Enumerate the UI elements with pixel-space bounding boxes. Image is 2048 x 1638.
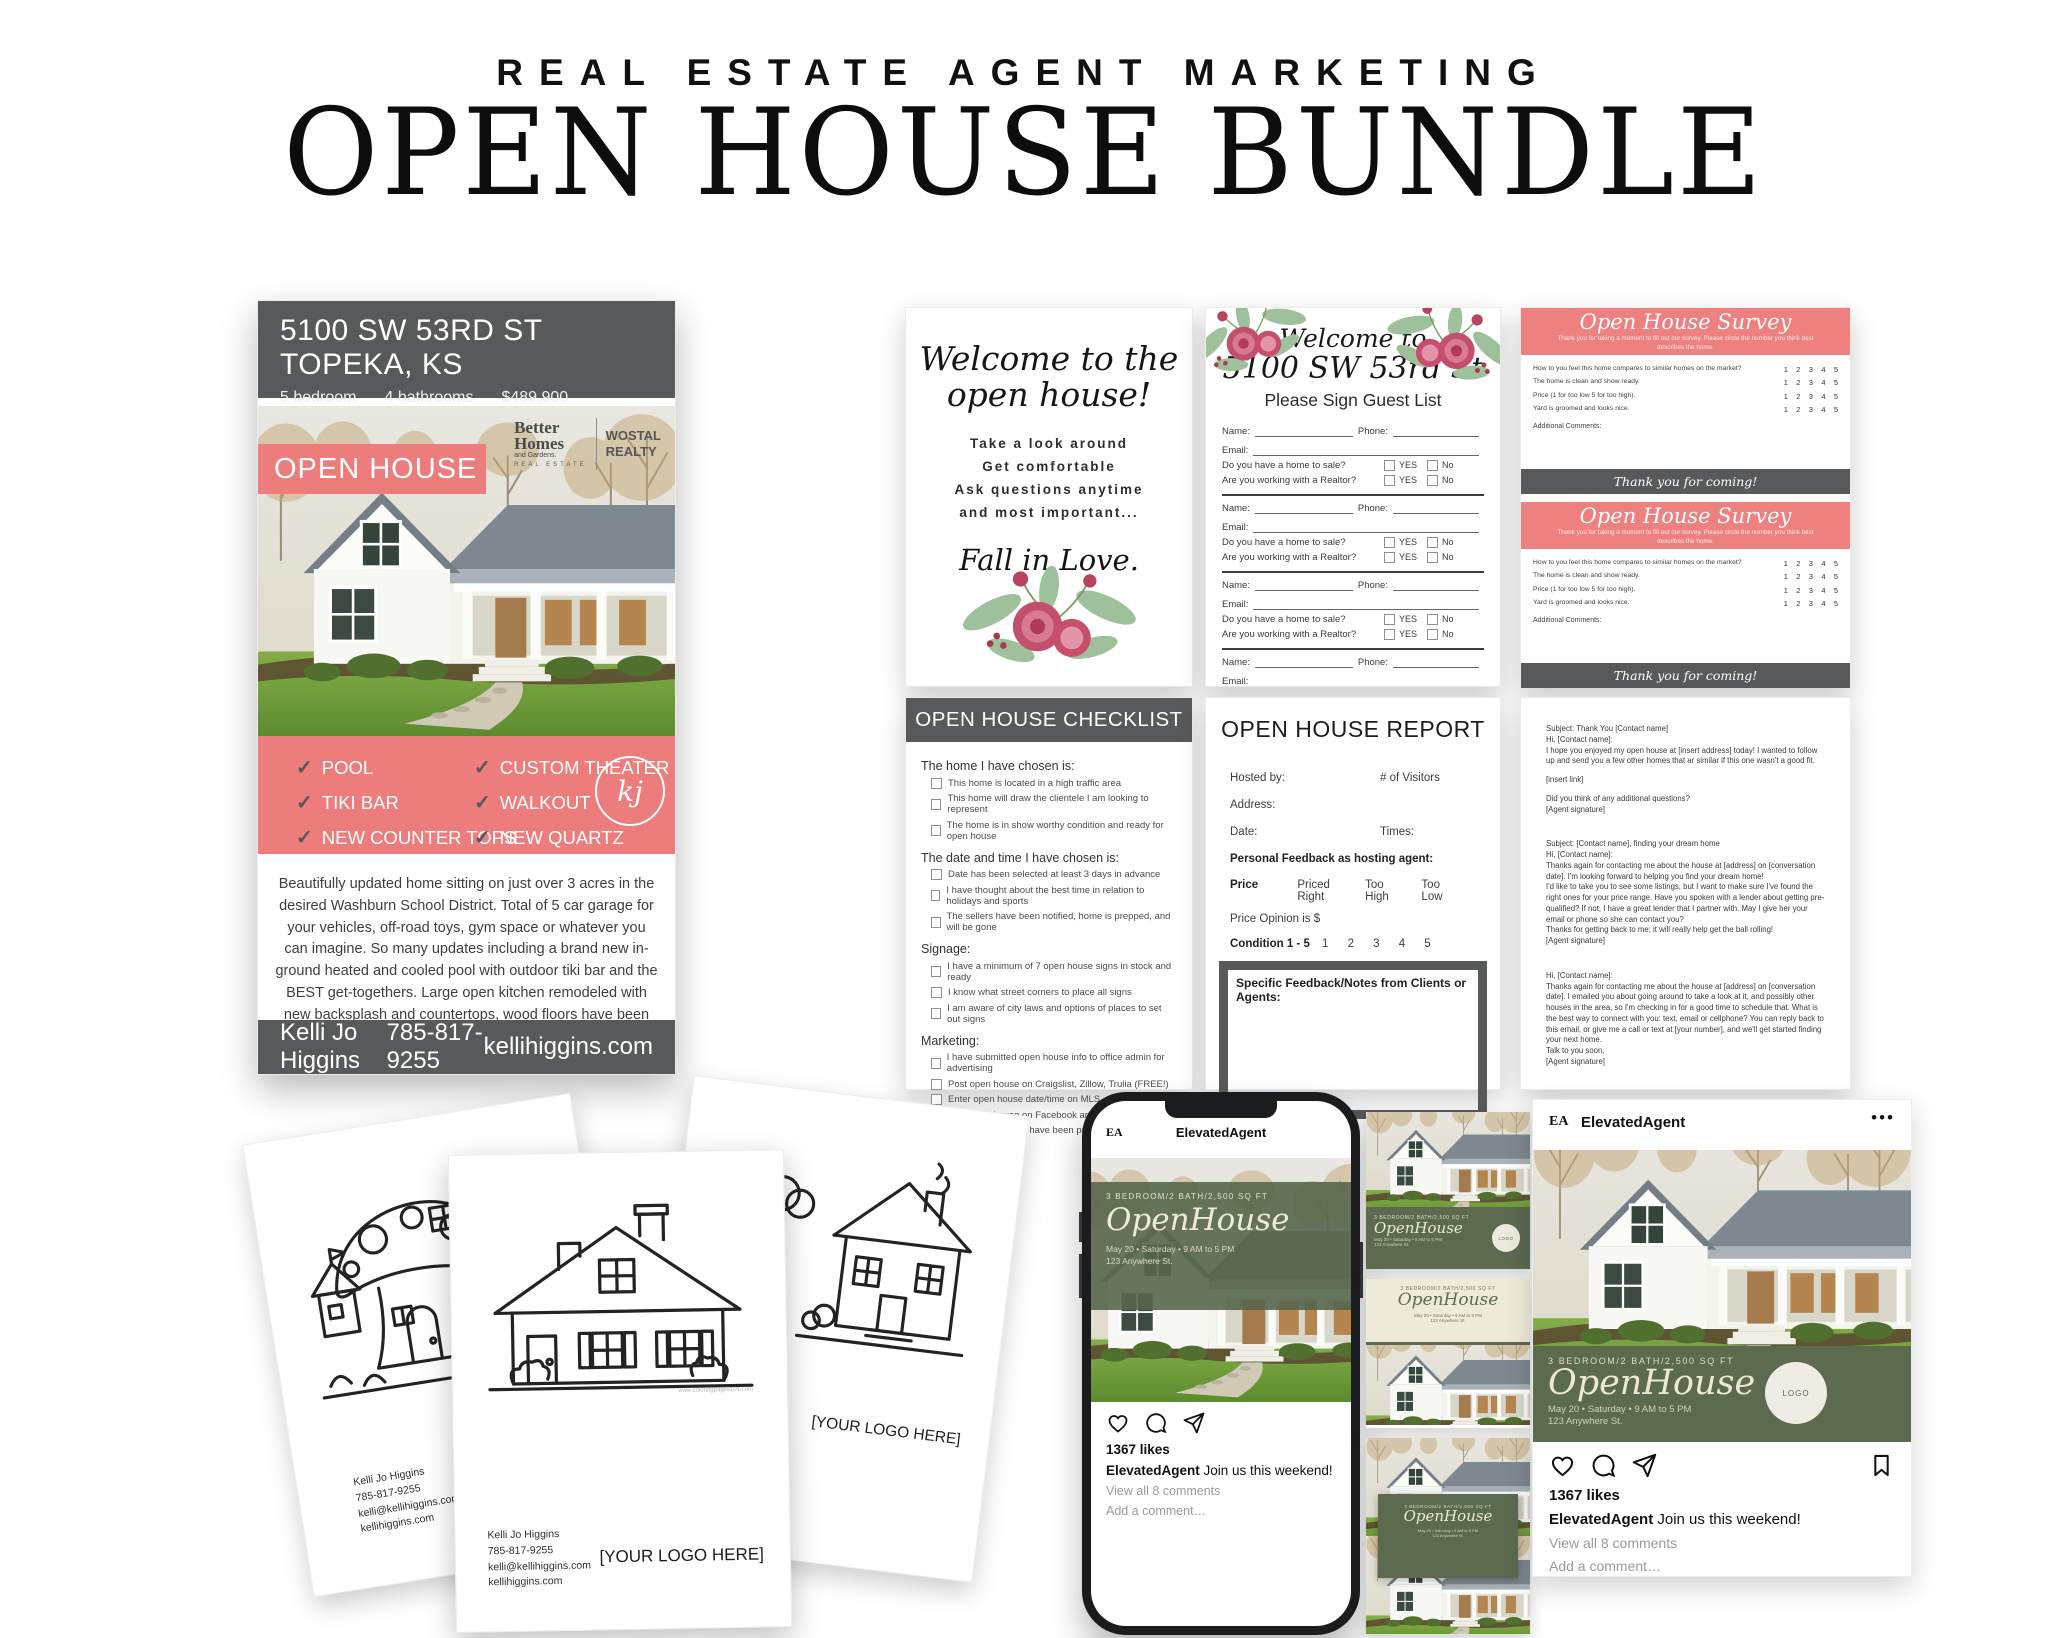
- flyer-specs: 5 bedroom4 bathrooms$489,900: [280, 389, 653, 407]
- agent-name: Kelli Jo Higgins: [280, 1019, 387, 1075]
- overlay-title: OpenHouse: [1106, 1202, 1351, 1238]
- check-icon: ✓: [296, 757, 313, 779]
- account-logo: EA: [1106, 1125, 1123, 1140]
- rating-scale: 1 2 3 4 5: [1784, 559, 1838, 568]
- view-comments-link[interactable]: View all 8 comments: [1533, 1528, 1911, 1551]
- checkbox[interactable]: [1427, 614, 1438, 625]
- survey-comments-label: Additional Comments:: [1533, 617, 1838, 624]
- checkbox[interactable]: [931, 1058, 941, 1069]
- guest-entry: Name:Phone: Email: Do you have a home to…: [1222, 571, 1484, 648]
- guest-entries: Name:Phone: Email: Do you have a home to…: [1222, 419, 1484, 688]
- checklist-item: I have a minimum of 7 open house signs i…: [931, 961, 1177, 983]
- checkbox[interactable]: [1427, 460, 1438, 471]
- checklist-item: Post open house on Craigslist, Zillow, T…: [931, 1079, 1177, 1090]
- add-comment-field[interactable]: Add a comment…: [1091, 1498, 1351, 1518]
- email-line: I'd like to take you to see some listing…: [1546, 882, 1825, 925]
- overlay-address: 123 Anywhere St.: [1106, 1256, 1351, 1266]
- feature-item: ✓TIKI BAR: [296, 786, 474, 821]
- share-icon[interactable]: [1631, 1452, 1658, 1479]
- survey-block: Open House Survey Thank you for taking a…: [1521, 308, 1850, 494]
- cottage-drawing: [478, 1189, 762, 1398]
- checkbox[interactable]: [931, 778, 942, 789]
- brokerage-wostal: WOSTAL: [606, 428, 661, 444]
- email-line: [Agent signature]: [1546, 1057, 1825, 1068]
- email-templates-page: Subject: Thank You [Contact name] Hi, [C…: [1520, 697, 1851, 1090]
- phone-notch: [1165, 1101, 1277, 1118]
- survey-comments-label: Additional Comments:: [1533, 423, 1838, 430]
- coloring-page-cottage: www.coloringpages101.com Kelli Jo Higgin…: [448, 1149, 792, 1633]
- email-line: Talk to you soon,: [1546, 1046, 1825, 1057]
- check-icon: ✓: [296, 792, 313, 814]
- survey-intro: Thank you for taking a moment to fill ou…: [1544, 529, 1827, 546]
- checkbox[interactable]: [1384, 537, 1395, 548]
- feature-item: ✓NEW COUNTER TOPS: [296, 821, 474, 856]
- band-date: May 20 • Saturday • 9 AM to 5 PM: [1548, 1404, 1911, 1415]
- survey-intro: Thank you for taking a moment to fill ou…: [1544, 335, 1827, 352]
- account-name: ElevatedAgent: [1581, 1114, 1685, 1131]
- share-icon[interactable]: [1182, 1411, 1206, 1435]
- rating-scale: 1 2 3 4 5: [1784, 586, 1838, 595]
- post-caption: ElevatedAgent Join us this weekend!: [1533, 1504, 1911, 1528]
- checklist-item: I am aware of city laws and options of p…: [931, 1003, 1177, 1025]
- checkbox[interactable]: [931, 1094, 942, 1105]
- brokerage-realty: REALTY: [606, 444, 661, 460]
- social-post-thumb-3: 3 BEDROOM/2 BATH/2,500 SQ FT OpenHouse M…: [1366, 1438, 1530, 1634]
- add-comment-field[interactable]: Add a comment…: [1533, 1551, 1911, 1574]
- condition-scale: 1 2 3 4 5: [1322, 938, 1431, 950]
- checkbox[interactable]: [931, 825, 941, 836]
- coloring-watermark: www.coloringpages101.com: [678, 1387, 753, 1394]
- welcome-sign: Welcome to the open house! Take a look a…: [905, 307, 1193, 687]
- report-title: OPEN HOUSE REPORT: [1206, 716, 1500, 743]
- checkbox[interactable]: [931, 1079, 942, 1090]
- thumb-photo: [1366, 1112, 1530, 1207]
- checkbox[interactable]: [1384, 475, 1395, 486]
- bookmark-icon[interactable]: [1868, 1452, 1895, 1479]
- guest-entry: Name:Phone: Email: Do you have a home to…: [1222, 419, 1484, 494]
- post-image: [1533, 1150, 1911, 1346]
- survey-block: Open House Survey Thank you for taking a…: [1521, 502, 1850, 688]
- coloring-contact: Kelli Jo Higgins785-817-9255kelli@kellih…: [352, 1460, 463, 1538]
- open-house-overlay: 3 BEDROOM/2 BATH/2,500 SQ FT OpenHouse M…: [1091, 1182, 1351, 1310]
- email-line: Thanks again for contacting me about the…: [1546, 982, 1825, 1047]
- email-line: Did you think of any additional question…: [1546, 794, 1825, 805]
- account-logo: EA: [1549, 1114, 1568, 1130]
- email-line: [Agent signature]: [1546, 805, 1825, 816]
- rating-scale: 1 2 3 4 5: [1784, 365, 1838, 374]
- flyer-beds: 5 bedroom: [280, 389, 357, 406]
- guest-entry: Name:Phone: Email: Do you have a home to…: [1222, 494, 1484, 571]
- survey-footer: Thank you for coming!: [1521, 663, 1850, 688]
- overlay-specs: 3 BEDROOM/2 BATH/2,500 SQ FT: [1106, 1192, 1351, 1201]
- rating-scale: 1 2 3 4 5: [1784, 572, 1838, 581]
- instagram-post-card: EA ElevatedAgent •••: [1532, 1099, 1912, 1577]
- email-line: Subject: Thank You [Contact name]: [1546, 724, 1825, 735]
- brokerage-homes: Homes: [514, 436, 587, 452]
- open-house-report: OPEN HOUSE REPORT Hosted by:# of Visitor…: [1205, 697, 1501, 1090]
- more-options-icon[interactable]: •••: [1871, 1108, 1895, 1128]
- checklist-section-heading: Marketing:: [921, 1034, 1177, 1048]
- open-house-flyer: 5100 SW 53RD ST TOPEKA, KS 5 bedroom4 ba…: [257, 300, 676, 1075]
- open-house-checklist: OPEN HOUSE CHECKLIST The home I have cho…: [905, 697, 1193, 1090]
- open-house-banner: OPEN HOUSE: [258, 444, 486, 494]
- comment-icon[interactable]: [1144, 1411, 1168, 1435]
- checkbox[interactable]: [931, 987, 942, 998]
- email-line: Thanks for getting back to me; it will r…: [1546, 925, 1825, 936]
- thumb-photo: [1366, 1345, 1530, 1425]
- checklist-item: This home will draw the clientele I am l…: [931, 793, 1177, 815]
- brokerage-realestate: REAL ESTATE: [514, 462, 587, 468]
- check-icon: ✓: [296, 827, 313, 849]
- email-line: Hi, [Contact name]:: [1546, 971, 1825, 982]
- survey-footer: Thank you for coming!: [1521, 469, 1850, 494]
- survey-title: Open House Survey: [1521, 311, 1850, 334]
- checkbox[interactable]: [931, 917, 941, 928]
- checkbox[interactable]: [931, 799, 941, 810]
- email-line: Thanks again for contacting me about the…: [1546, 861, 1825, 883]
- logo-placeholder: [YOUR LOGO HERE]: [599, 1545, 764, 1568]
- comment-icon[interactable]: [1590, 1452, 1617, 1479]
- post-actions: [1533, 1442, 1911, 1479]
- logo-circle: LOGO: [1492, 1224, 1520, 1252]
- checklist-item: I have submitted open house info to offi…: [931, 1052, 1177, 1074]
- checkbox[interactable]: [1384, 614, 1395, 625]
- guest-subheading: Please Sign Guest List: [1206, 390, 1500, 411]
- welcome-title-line1: Welcome to the: [906, 342, 1192, 377]
- flyer-features-band: ✓POOL ✓TIKI BAR ✓NEW COUNTER TOPS ✓CUSTO…: [258, 736, 675, 854]
- feature-item: ✓NEW QUARTZ: [474, 821, 652, 856]
- likes-count: 1367 likes: [1091, 1435, 1351, 1457]
- open-house-survey-page: Open House Survey Thank you for taking a…: [1520, 307, 1851, 687]
- account-name: ElevatedAgent: [1091, 1125, 1351, 1140]
- coloring-contact: Kelli Jo Higgins785-817-9255kelli@kellih…: [487, 1527, 591, 1592]
- phone-volume-button: [1079, 1212, 1082, 1242]
- brokerage-gardens: and Gardens.: [514, 452, 587, 460]
- phone-volume-button: [1079, 1254, 1082, 1298]
- rating-scale: 1 2 3 4 5: [1784, 405, 1838, 414]
- guest-entry: Name:Phone: Email: Do you have a home to…: [1222, 648, 1484, 688]
- checklist-item: Date has been selected at least 3 days i…: [931, 869, 1177, 880]
- checklist-title: OPEN HOUSE CHECKLIST: [906, 698, 1192, 742]
- phone-power-button: [1360, 1242, 1363, 1298]
- checklist-item: This home is located in a high traffic a…: [931, 778, 1177, 789]
- post-actions: [1091, 1402, 1351, 1435]
- email-line: Subject: [Contact name], finding your dr…: [1546, 839, 1825, 850]
- checkbox[interactable]: [931, 890, 940, 901]
- phone-screen: EA ElevatedAgent 3 BEDROOM/2 BATH/2,500 …: [1091, 1101, 1351, 1626]
- email-line: [Agent signature]: [1546, 936, 1825, 947]
- checkbox[interactable]: [1427, 552, 1438, 563]
- flyer-address: 5100 SW 53RD ST TOPEKA, KS: [280, 314, 653, 382]
- agent-website: kellihiggins.com: [484, 1033, 653, 1061]
- checkbox[interactable]: [1427, 537, 1438, 548]
- flyer-price: $489,900: [501, 389, 568, 406]
- band-title: OpenHouse: [1548, 1366, 1911, 1401]
- overlay-date: May 20 • Saturday • 9 AM to 5 PM: [1106, 1244, 1351, 1254]
- likes-count: 1367 likes: [1533, 1479, 1911, 1504]
- email-line: Hi, [Contact name]:: [1546, 735, 1825, 746]
- instagram-header: EA ElevatedAgent •••: [1533, 1100, 1911, 1150]
- kj-logo-badge: kj: [595, 756, 665, 826]
- like-icon[interactable]: [1549, 1452, 1576, 1479]
- survey-title: Open House Survey: [1521, 505, 1850, 528]
- open-house-banner-band: 3 BEDROOM/2 BATH/2,500 SQ FT OpenHouse M…: [1533, 1346, 1911, 1442]
- check-icon: ✓: [474, 827, 491, 849]
- checkbox[interactable]: [1384, 629, 1395, 640]
- rating-scale: 1 2 3 4 5: [1784, 392, 1838, 401]
- view-comments-link[interactable]: View all 8 comments: [1091, 1478, 1351, 1498]
- rating-scale: 1 2 3 4 5: [1784, 599, 1838, 608]
- checkbox[interactable]: [931, 869, 942, 880]
- checklist-section-heading: The home I have chosen is:: [921, 759, 1177, 773]
- brokerage-logo: Better Homes and Gardens. REAL ESTATE WO…: [508, 414, 667, 474]
- band-address: 123 Anywhere St.: [1548, 1416, 1911, 1427]
- logo-circle: LOGO: [1765, 1362, 1827, 1424]
- checklist-item: The home is in show worthy condition and…: [931, 820, 1177, 842]
- flower-bouquet-illustration: [954, 558, 1144, 676]
- post-caption: ElevatedAgent Join us this weekend!: [1091, 1457, 1351, 1478]
- page-title: OPEN HOUSE BUNDLE: [0, 94, 2048, 213]
- checkbox[interactable]: [1384, 460, 1395, 471]
- email-line: I hope you enjoyed my open house at [ins…: [1546, 746, 1825, 768]
- flyer-baths: 4 bathrooms: [385, 389, 474, 406]
- flyer-house-photo: Better Homes and Gardens. REAL ESTATE WO…: [258, 406, 675, 736]
- checkbox[interactable]: [1384, 552, 1395, 563]
- flyer-header: 5100 SW 53RD ST TOPEKA, KS 5 bedroom4 ba…: [258, 301, 675, 398]
- guest-list-sign: Welcome to 5100 SW 53rd St Please Sign G…: [1205, 307, 1501, 687]
- phone-mockup: EA ElevatedAgent 3 BEDROOM/2 BATH/2,500 …: [1082, 1092, 1360, 1635]
- checkbox[interactable]: [931, 966, 941, 977]
- checkbox[interactable]: [931, 1008, 941, 1019]
- check-icon: ✓: [474, 792, 491, 814]
- email-line: Hi, [Contact name]:: [1546, 850, 1825, 861]
- email-line: [insert link]: [1546, 775, 1825, 786]
- checklist-item: The sellers have been notified, home is …: [931, 911, 1177, 933]
- agent-phone: 785-817-9255: [387, 1019, 484, 1075]
- logo-placeholder: [YOUR LOGO HERE]: [811, 1413, 962, 1449]
- check-icon: ✓: [474, 757, 491, 779]
- feature-item: ✓POOL: [296, 751, 474, 786]
- checklist-item: I know what street corners to place all …: [931, 987, 1177, 998]
- brokerage-divider: [596, 418, 597, 470]
- like-icon[interactable]: [1106, 1411, 1130, 1435]
- checklist-section-heading: The date and time I have chosen is:: [921, 851, 1177, 865]
- checkbox[interactable]: [1427, 629, 1438, 640]
- welcome-title-line2: open house!: [906, 377, 1192, 413]
- report-notes-label: Specific Feedback/Notes from Clients or …: [1236, 976, 1470, 1004]
- rating-scale: 1 2 3 4 5: [1784, 378, 1838, 387]
- flyer-footer: Kelli Jo Higgins 785-817-9255 kellihiggi…: [258, 1020, 675, 1074]
- social-post-thumb-1: 3 BEDROOM/2 BATH/2,500 SQ FT OpenHouse M…: [1366, 1112, 1530, 1269]
- welcome-body: Take a look around Get comfortable Ask q…: [906, 433, 1192, 525]
- checklist-item: I have thought about the best time in re…: [931, 885, 1177, 907]
- checkbox[interactable]: [1427, 475, 1438, 486]
- checklist-section-heading: Signage:: [921, 942, 1177, 956]
- post-image: 3 BEDROOM/2 BATH/2,500 SQ FT OpenHouse M…: [1091, 1158, 1351, 1402]
- social-post-thumb-2: 3 BEDROOM/2 BATH/2,500 SQ FT OpenHouse M…: [1366, 1279, 1530, 1428]
